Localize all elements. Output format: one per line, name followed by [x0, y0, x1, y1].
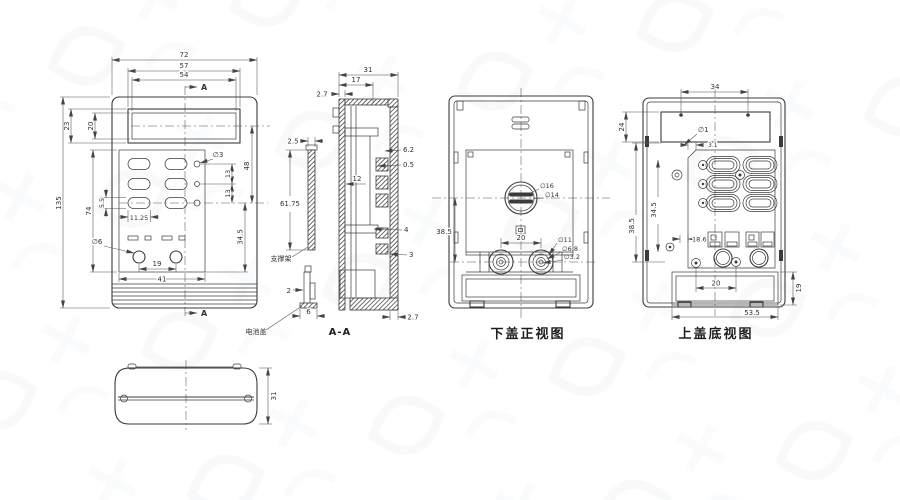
top-cover-title: 上盖底视图 — [678, 326, 753, 342]
dim-front-20: 20 — [87, 122, 95, 131]
dim-bc-dia11: ∅11 — [558, 236, 572, 244]
dim-tc-3-1: 3.1 — [708, 142, 718, 149]
dim-front-54: 54 — [180, 71, 189, 79]
dim-front-19: 19 — [153, 260, 162, 268]
dim-tc-18-6: 18.6 — [692, 236, 706, 244]
drawing-sheet: A A 72 57 54 23 20 135 74 5.5 11.25 ∅6 1… — [0, 0, 900, 500]
dim-front-135: 135 — [55, 196, 63, 209]
section-label: A-A — [329, 327, 352, 338]
battery-cover-label: 电池盖 — [246, 327, 267, 336]
dim-front-74: 74 — [85, 206, 93, 215]
section-arrow-top: A — [201, 83, 208, 92]
technical-drawing: A A 72 57 54 23 20 135 74 5.5 11.25 ∅6 1… — [0, 0, 900, 500]
support-bracket — [306, 145, 317, 250]
dim-bc-dia14: ∅14 — [545, 191, 559, 199]
dim-sec-2-7-top: 2.7 — [316, 91, 327, 99]
dim-sec-4: 4 — [404, 226, 409, 234]
support-bracket-label: 支撑架 — [271, 254, 292, 263]
dim-front-11-25: 11.25 — [130, 214, 149, 222]
dim-tc-53-5: 53.5 — [744, 309, 760, 317]
dim-bc-dia3-2: ∅3.2 — [564, 253, 580, 261]
dim-tc-24: 24 — [618, 122, 626, 131]
watermark-pattern — [0, 0, 900, 500]
dim-front-dia3: ∅3 — [213, 151, 224, 159]
section-arrow-bottom: A — [201, 309, 208, 318]
dim-sec-17: 17 — [352, 76, 361, 84]
dim-bc-dia16: ∅16 — [540, 182, 554, 190]
dim-front-23: 23 — [63, 122, 71, 131]
dim-sec-2: 2 — [287, 287, 291, 295]
dim-tc-20: 20 — [712, 280, 721, 288]
dim-tc-34-5: 34.5 — [650, 202, 658, 218]
dim-tc-dia1: ∅1 — [698, 126, 709, 134]
dim-bc-20: 20 — [517, 234, 526, 242]
dim-sec-2-7-bottom: 2.7 — [407, 314, 418, 322]
dim-front-13a: 13 — [224, 170, 232, 178]
dim-sec-3: 3 — [409, 251, 413, 259]
dim-sec-31: 31 — [364, 66, 373, 74]
dim-front-41: 41 — [158, 276, 167, 284]
dim-sec-12: 12 — [353, 175, 362, 183]
dim-bc-38-5: 38.5 — [436, 228, 452, 236]
dim-front-5-5: 5.5 — [98, 198, 106, 208]
dim-tc-19: 19 — [795, 284, 803, 293]
dim-bc-dia6-8: ∅6.8 — [562, 245, 578, 253]
dim-front-34-5: 34.5 — [237, 229, 245, 245]
dim-front-57: 57 — [180, 62, 189, 70]
dim-sec-6: 6 — [306, 308, 311, 316]
dim-tc-34: 34 — [711, 83, 720, 91]
bottom-cover-title: 下盖正视图 — [490, 326, 565, 342]
dim-sec-0-5: 0.5 — [403, 161, 414, 169]
dim-sec-6-2: 6.2 — [403, 146, 414, 154]
dim-sec-2-5: 2.5 — [287, 138, 298, 146]
dim-front-72: 72 — [180, 51, 189, 59]
dim-front-48: 48 — [243, 162, 251, 171]
dim-tc-38-5: 38.5 — [628, 218, 636, 234]
dim-front-dia6: ∅6 — [92, 238, 103, 246]
dim-front-13b: 13 — [224, 189, 232, 197]
dim-end-31: 31 — [270, 392, 278, 401]
dim-sec-61-75: 61.75 — [280, 200, 300, 208]
